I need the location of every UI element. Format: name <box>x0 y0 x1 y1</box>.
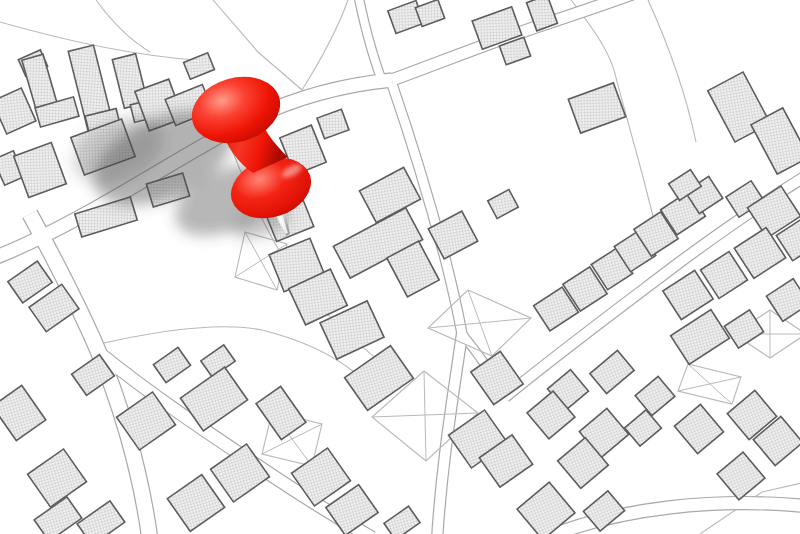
city-map <box>0 0 800 534</box>
map-illustration <box>0 0 800 534</box>
